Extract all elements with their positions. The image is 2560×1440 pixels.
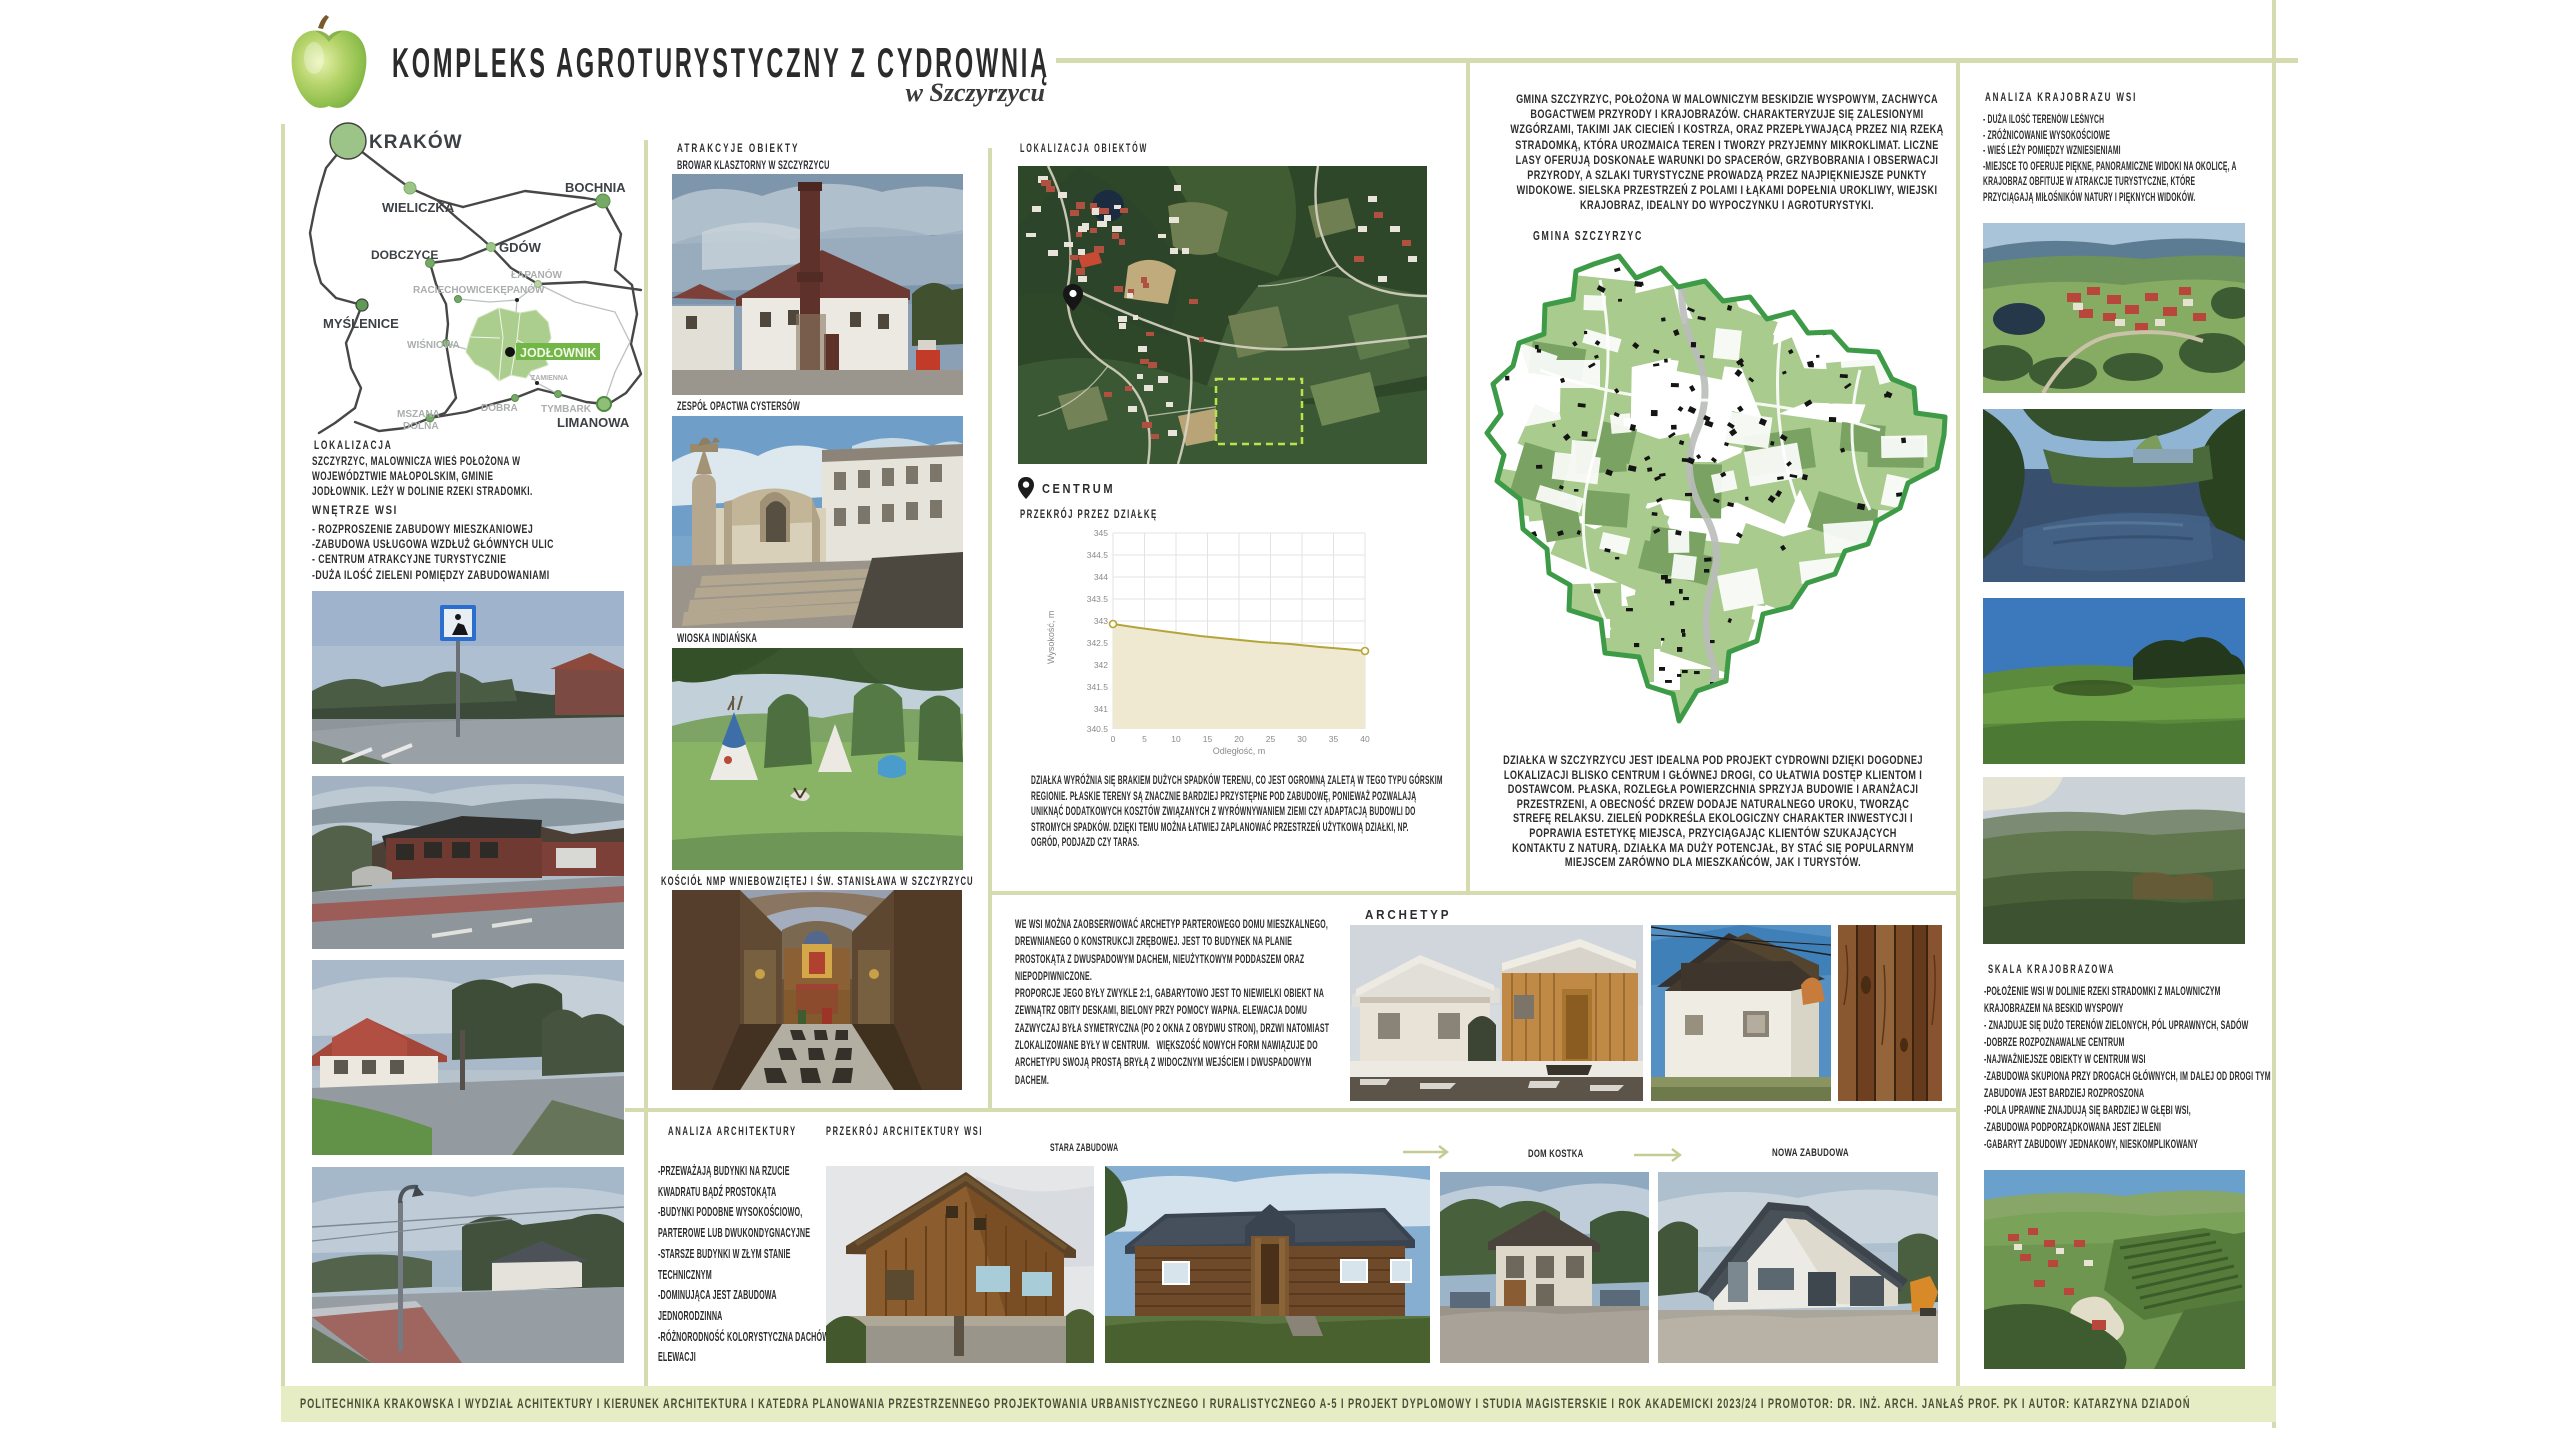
svg-text:340.5: 340.5 <box>1087 724 1109 734</box>
svg-text:25: 25 <box>1266 734 1276 744</box>
svg-text:KRAKÓW: KRAKÓW <box>369 131 463 153</box>
svg-text:BOCHNIA: BOCHNIA <box>565 180 626 195</box>
svg-text:10: 10 <box>1171 734 1181 744</box>
svg-text:DOBCZYCE: DOBCZYCE <box>371 248 438 262</box>
svg-text:RACIECHOWICE: RACIECHOWICE <box>413 285 493 296</box>
svg-text:MSZANA: MSZANA <box>397 409 440 420</box>
svg-text:Wysokość, m: Wysokość, m <box>1046 611 1056 664</box>
svg-text:40: 40 <box>1360 734 1370 744</box>
svg-text:LIMANOWA: LIMANOWA <box>557 415 630 430</box>
svg-text:15: 15 <box>1203 734 1213 744</box>
svg-text:5: 5 <box>1142 734 1147 744</box>
svg-text:JODŁOWNIK: JODŁOWNIK <box>520 346 596 360</box>
svg-text:341.5: 341.5 <box>1087 682 1109 692</box>
svg-text:WIŚNIOWA: WIŚNIOWA <box>407 338 460 351</box>
svg-text:30: 30 <box>1297 734 1307 744</box>
svg-text:35: 35 <box>1329 734 1339 744</box>
svg-text:ZAMIENNA: ZAMIENNA <box>531 375 568 382</box>
svg-text:WIELICZKA: WIELICZKA <box>382 200 455 215</box>
svg-text:344.5: 344.5 <box>1087 550 1109 560</box>
svg-text:344: 344 <box>1094 572 1108 582</box>
svg-text:DOBRA: DOBRA <box>481 403 518 414</box>
svg-text:KĘPANÓW: KĘPANÓW <box>493 283 545 296</box>
svg-text:345: 345 <box>1094 528 1108 538</box>
svg-text:ŁAPANÓW: ŁAPANÓW <box>511 268 562 281</box>
svg-text:343: 343 <box>1094 616 1108 626</box>
svg-text:20: 20 <box>1234 734 1244 744</box>
svg-text:TYMBARK: TYMBARK <box>541 404 592 415</box>
svg-text:Odległość, m: Odległość, m <box>1213 746 1266 756</box>
svg-text:341: 341 <box>1094 704 1108 714</box>
svg-text:MYŚLENICE: MYŚLENICE <box>323 316 399 331</box>
svg-text:GDÓW: GDÓW <box>499 240 542 255</box>
svg-text:343.5: 343.5 <box>1087 594 1109 604</box>
svg-text:DOLNA: DOLNA <box>403 421 439 432</box>
svg-text:0: 0 <box>1111 734 1116 744</box>
svg-text:342: 342 <box>1094 660 1108 670</box>
svg-text:342.5: 342.5 <box>1087 638 1109 648</box>
